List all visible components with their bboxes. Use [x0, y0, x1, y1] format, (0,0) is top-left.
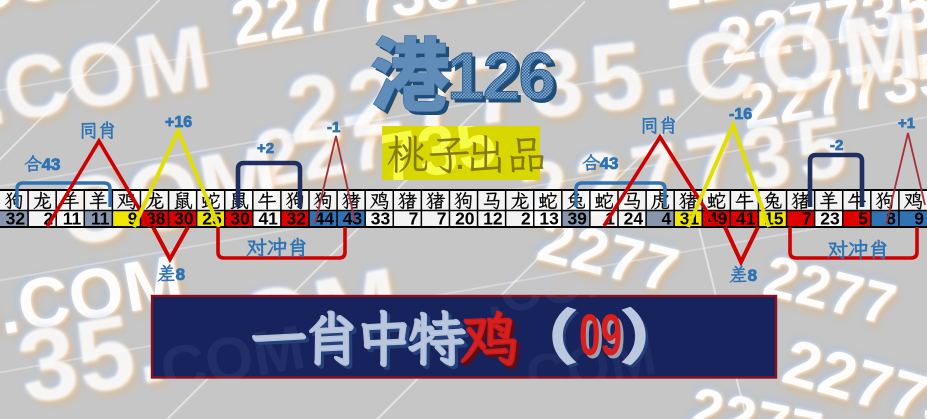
- svg-text:41: 41: [736, 209, 756, 229]
- svg-text:24: 24: [624, 209, 644, 229]
- svg-text:7: 7: [409, 209, 419, 229]
- svg-text:8: 8: [748, 266, 757, 285]
- svg-text:+1: +1: [898, 115, 915, 132]
- svg-text:-16: -16: [729, 106, 752, 123]
- svg-text:+2: +2: [257, 140, 274, 157]
- svg-text:30: 30: [174, 209, 194, 229]
- svg-text:4: 4: [661, 209, 671, 229]
- svg-text:11: 11: [91, 209, 110, 229]
- svg-text:32: 32: [287, 209, 307, 229]
- svg-text:2: 2: [521, 209, 531, 229]
- svg-text:09: 09: [579, 303, 622, 368]
- svg-text:-2: -2: [830, 137, 843, 154]
- svg-text:39: 39: [567, 209, 587, 229]
- svg-text:+16: +16: [165, 114, 192, 131]
- svg-text:20: 20: [455, 209, 475, 229]
- svg-text:126: 126: [447, 39, 554, 114]
- svg-text:43: 43: [600, 154, 619, 173]
- svg-text:33: 33: [371, 209, 391, 229]
- svg-text:.: .: [456, 144, 464, 175]
- svg-text:7: 7: [437, 209, 447, 229]
- svg-text:23: 23: [820, 209, 840, 229]
- svg-text:12: 12: [483, 209, 503, 229]
- svg-text:13: 13: [539, 209, 559, 229]
- svg-text:41: 41: [258, 209, 278, 229]
- svg-text:5: 5: [858, 209, 868, 229]
- svg-text:43: 43: [42, 155, 61, 174]
- svg-text:9: 9: [914, 209, 924, 229]
- svg-text:32: 32: [6, 209, 26, 229]
- svg-text:11: 11: [63, 209, 82, 229]
- svg-text:30: 30: [230, 209, 250, 229]
- svg-text:8: 8: [176, 265, 185, 284]
- svg-text:7: 7: [802, 209, 812, 229]
- svg-text:-1: -1: [327, 119, 340, 136]
